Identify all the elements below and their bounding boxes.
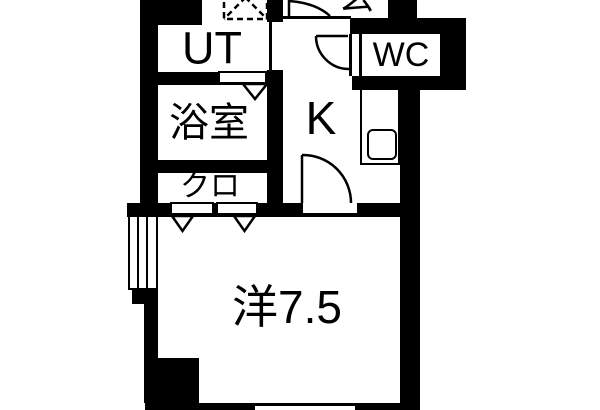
window-left bbox=[128, 215, 158, 290]
wall-left-lower bbox=[144, 304, 158, 358]
closet-opening-right bbox=[216, 202, 258, 215]
room-label-closet: クロ bbox=[180, 172, 240, 202]
entrance-door-arc bbox=[289, 0, 330, 17]
kitchen-sink bbox=[367, 129, 397, 160]
washing-machine-pan-icon bbox=[224, 0, 267, 19]
floor-plan: UT 浴室 クロ K WC 洋7.5 玄 bbox=[0, 0, 600, 410]
ut-bath-door-marker bbox=[243, 84, 267, 99]
window-left-pane-line-1 bbox=[137, 215, 139, 290]
closet-door-marker-left bbox=[172, 216, 193, 231]
room-label-kitchen: K bbox=[306, 95, 337, 141]
wall-window-sill bbox=[132, 290, 158, 304]
room-label-bathroom: 浴室 bbox=[169, 103, 249, 143]
closet-door-marker-right bbox=[234, 216, 255, 231]
room-door-arc bbox=[302, 155, 351, 203]
room-label-utility: UT bbox=[182, 26, 242, 71]
room-label-entrance: 玄 bbox=[338, 0, 374, 15]
window-bottom bbox=[255, 406, 355, 410]
wc-jamb-left bbox=[349, 34, 352, 76]
room-doorway-gap bbox=[303, 203, 357, 215]
room-label-western-room: 洋7.5 bbox=[232, 284, 342, 330]
closet-opening-left bbox=[170, 202, 214, 215]
wall-left-upper bbox=[140, 0, 158, 205]
ut-doorway-jamb bbox=[269, 22, 272, 70]
wc-door-arc bbox=[316, 36, 349, 69]
window-left-pane-line-2 bbox=[146, 215, 148, 290]
wall-right bbox=[400, 88, 420, 410]
room-label-toilet: WC bbox=[373, 38, 430, 72]
pillar-bottom-left bbox=[144, 358, 199, 403]
wc-jamb-right bbox=[359, 34, 362, 76]
